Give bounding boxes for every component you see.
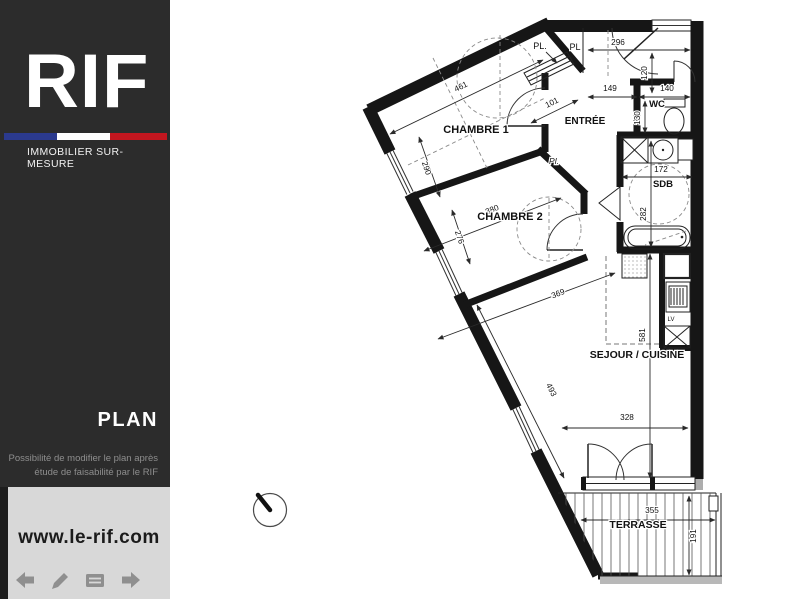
room-label: CHAMBRE 1 [443, 124, 508, 136]
room-label: SEJOUR / CUISINE [590, 349, 685, 361]
vent-box [709, 496, 718, 511]
notes-icon[interactable] [82, 567, 108, 593]
rif-logo: RIF [24, 40, 149, 124]
dimension-label: 282 [639, 207, 648, 221]
dimension-label: 290 [420, 160, 433, 176]
dimension-label: 328 [620, 413, 634, 422]
sidebar: RIF IMMOBILIER SUR-MESURE PLAN Possibili… [0, 0, 170, 487]
sidebar-footer: www.le-rif.com [8, 487, 170, 599]
dimension-label: 191 [689, 529, 698, 543]
flag-red-segment [110, 133, 167, 140]
dimension-label: 493 [544, 382, 558, 399]
room-label-layer: CHAMBRE 1CHAMBRE 2ENTRÉEWCSDBSEJOUR / CU… [443, 41, 684, 531]
plan-note-line2: étude de faisabilité par le RIF [34, 467, 158, 478]
dimension-label: 355 [645, 506, 659, 515]
section-title: PLAN [98, 409, 158, 432]
bathroom-fixtures [621, 99, 693, 249]
floor-plan: 4612901012961201491401303802761722823695… [170, 0, 800, 599]
dimension-label: 130 [633, 111, 642, 125]
room-label: Pl. [549, 156, 559, 166]
page: RIF IMMOBILIER SUR-MESURE PLAN Possibili… [0, 0, 800, 599]
room-label: PL. [533, 41, 547, 51]
forward-arrow-icon[interactable] [116, 567, 142, 593]
room-label: TERRASSE [609, 519, 666, 531]
french-flag-bar [4, 133, 167, 140]
dimension-label: 120 [640, 66, 649, 80]
dimension-label: 369 [550, 287, 566, 300]
room-label: PL [569, 42, 580, 52]
room-label: WC [649, 99, 665, 110]
dimension-label: 140 [660, 84, 674, 93]
plan-note: Possibilité de modifier le plan après ét… [8, 452, 158, 480]
room-label: CHAMBRE 2 [477, 211, 542, 223]
dimension-label: 149 [603, 84, 617, 93]
website-link[interactable]: www.le-rif.com [8, 527, 170, 549]
dimension-label: 276 [453, 229, 466, 245]
room-label: SDB [653, 179, 673, 190]
plan-note-line1: Possibilité de modifier le plan après [9, 453, 158, 464]
dimension-label: 296 [611, 38, 625, 47]
dimension-label: 461 [453, 80, 470, 94]
back-arrow-icon[interactable] [14, 567, 40, 593]
logo-tagline: IMMOBILIER SUR-MESURE [27, 146, 170, 170]
flag-white-segment [57, 133, 110, 140]
left-edge-strip [0, 487, 8, 599]
dimension-label: 101 [544, 96, 561, 110]
room-label: LV [668, 317, 675, 323]
toolbar [14, 567, 142, 593]
room-label: ENTRÉE [565, 114, 606, 127]
kitchen-appliances [622, 254, 690, 348]
flag-blue-segment [4, 133, 57, 140]
dimension-label: 172 [654, 165, 668, 174]
dimension-label: 581 [638, 328, 647, 342]
pencil-icon[interactable] [48, 567, 74, 593]
compass-icon [254, 494, 287, 527]
